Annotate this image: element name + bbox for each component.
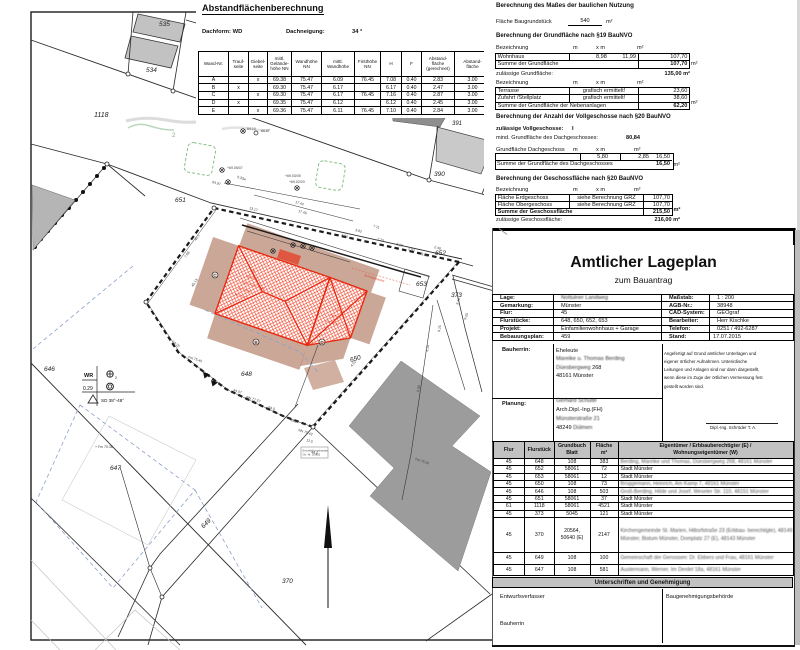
svg-text:649: 649 bbox=[200, 517, 213, 530]
svg-text:2.96: 2.96 bbox=[341, 233, 349, 239]
svg-text:12.5: 12.5 bbox=[306, 438, 314, 444]
svg-text:3.10: 3.10 bbox=[421, 252, 429, 258]
svg-text:B: B bbox=[254, 340, 257, 345]
svg-text:7.11: 7.11 bbox=[373, 224, 380, 230]
svg-text:+69.02/03: +69.02/03 bbox=[289, 180, 305, 184]
svg-text:64.97: 64.97 bbox=[212, 180, 222, 186]
svg-text:17.46: 17.46 bbox=[298, 209, 308, 215]
svg-text:9.25: 9.25 bbox=[463, 313, 469, 321]
svg-text:370: 370 bbox=[282, 578, 293, 585]
svg-text:+ Fm 75.38: + Fm 75.38 bbox=[95, 445, 113, 449]
svg-text:0.29: 0.29 bbox=[83, 386, 93, 392]
svg-text:648: 648 bbox=[241, 371, 252, 378]
svg-text:647: 647 bbox=[110, 465, 121, 472]
svg-text:5.33a: 5.33a bbox=[237, 175, 247, 181]
svg-text:2.52: 2.52 bbox=[408, 247, 416, 253]
svg-text:1118: 1118 bbox=[94, 112, 109, 119]
svg-text:534: 534 bbox=[146, 67, 157, 74]
svg-text:SD 38°-48°: SD 38°-48° bbox=[101, 398, 124, 403]
svg-text:535: 535 bbox=[159, 21, 170, 28]
svg-text:66.67: 66.67 bbox=[261, 129, 270, 133]
svg-text:69.10: 69.10 bbox=[247, 127, 256, 131]
svg-text:391: 391 bbox=[452, 121, 462, 127]
svg-text:7.68: 7.68 bbox=[184, 251, 191, 259]
svg-text:+69.03/05: +69.03/05 bbox=[285, 174, 301, 178]
svg-text:2.23: 2.23 bbox=[377, 237, 385, 243]
svg-text:3.82: 3.82 bbox=[355, 228, 363, 234]
svg-text:3.10: 3.10 bbox=[455, 298, 461, 306]
svg-text:WR: WR bbox=[84, 373, 93, 379]
svg-text:44.0: 44.0 bbox=[290, 418, 298, 424]
svg-text:390: 390 bbox=[434, 171, 445, 178]
svg-text:651: 651 bbox=[175, 197, 186, 204]
svg-text:2: 2 bbox=[172, 133, 176, 139]
svg-text:3.10: 3.10 bbox=[425, 345, 430, 352]
svg-text:9.25: 9.25 bbox=[437, 325, 442, 332]
svg-text:45.1: 45.1 bbox=[194, 234, 201, 242]
svg-text:+69.05/07: +69.05/07 bbox=[227, 166, 243, 170]
svg-text:2: 2 bbox=[115, 376, 117, 380]
svg-text:652: 652 bbox=[435, 250, 446, 257]
svg-text:646: 646 bbox=[44, 366, 55, 373]
svg-text:2.19: 2.19 bbox=[396, 242, 404, 248]
svg-text:17.44: 17.44 bbox=[295, 200, 305, 206]
svg-text:653: 653 bbox=[416, 281, 427, 288]
